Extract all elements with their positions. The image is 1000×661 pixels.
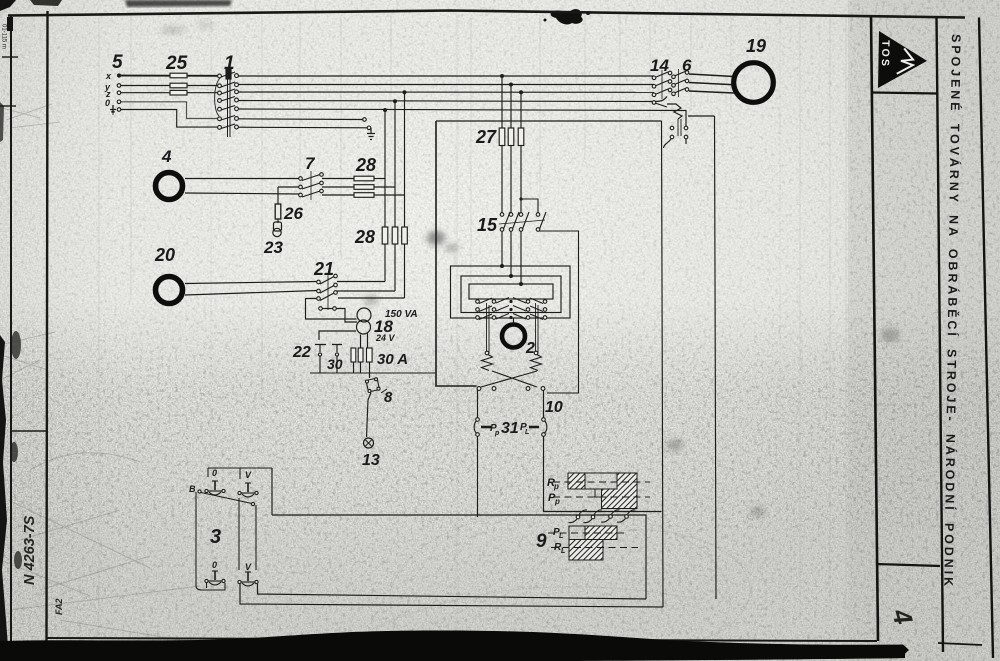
svg-text:6: 6 — [682, 56, 692, 75]
svg-text:15: 15 — [477, 215, 498, 235]
svg-text:21: 21 — [313, 259, 334, 279]
svg-text:V: V — [245, 562, 252, 572]
svg-text:3: 3 — [210, 526, 221, 548]
svg-text:30 A: 30 A — [377, 351, 408, 368]
svg-text:27: 27 — [475, 127, 497, 147]
svg-text:23: 23 — [263, 238, 283, 257]
svg-text:10: 10 — [545, 399, 563, 416]
svg-text:p: p — [553, 482, 559, 491]
svg-text:31: 31 — [501, 420, 519, 437]
svg-text:1: 1 — [224, 53, 235, 74]
svg-text:p: p — [554, 497, 560, 506]
svg-text:N 4263-7S: N 4263-7S — [22, 515, 38, 585]
svg-text:5: 5 — [112, 52, 123, 73]
svg-text:24 V: 24 V — [375, 333, 396, 343]
svg-text:26: 26 — [283, 204, 303, 223]
svg-text:0: 0 — [105, 98, 110, 108]
svg-text:V: V — [245, 470, 252, 480]
svg-text:0: 0 — [212, 560, 217, 570]
svg-text:01-115 m: 01-115 m — [1, 24, 7, 49]
svg-text:20: 20 — [154, 245, 175, 265]
svg-text:30: 30 — [327, 356, 343, 372]
svg-text:x: x — [105, 71, 112, 81]
svg-text:25: 25 — [165, 53, 188, 74]
svg-text:13: 13 — [362, 452, 380, 469]
svg-text:14: 14 — [650, 56, 669, 75]
svg-text:L: L — [561, 548, 565, 555]
svg-text:22: 22 — [292, 344, 311, 361]
svg-text:28: 28 — [355, 155, 376, 175]
svg-text:8: 8 — [384, 389, 393, 406]
svg-text:p: p — [494, 430, 500, 437]
svg-text:B: B — [189, 484, 196, 494]
svg-text:19: 19 — [746, 36, 766, 56]
svg-text:4: 4 — [161, 147, 172, 166]
svg-text:9: 9 — [536, 531, 547, 552]
svg-text:7: 7 — [305, 154, 316, 173]
svg-text:L: L — [525, 429, 529, 436]
svg-text:0: 0 — [212, 468, 217, 478]
svg-text:28: 28 — [354, 227, 375, 247]
svg-text:L: L — [559, 533, 563, 540]
svg-text:2: 2 — [525, 340, 535, 357]
svg-text:TOS: TOS — [879, 40, 891, 68]
svg-text:FA2: FA2 — [54, 598, 64, 615]
